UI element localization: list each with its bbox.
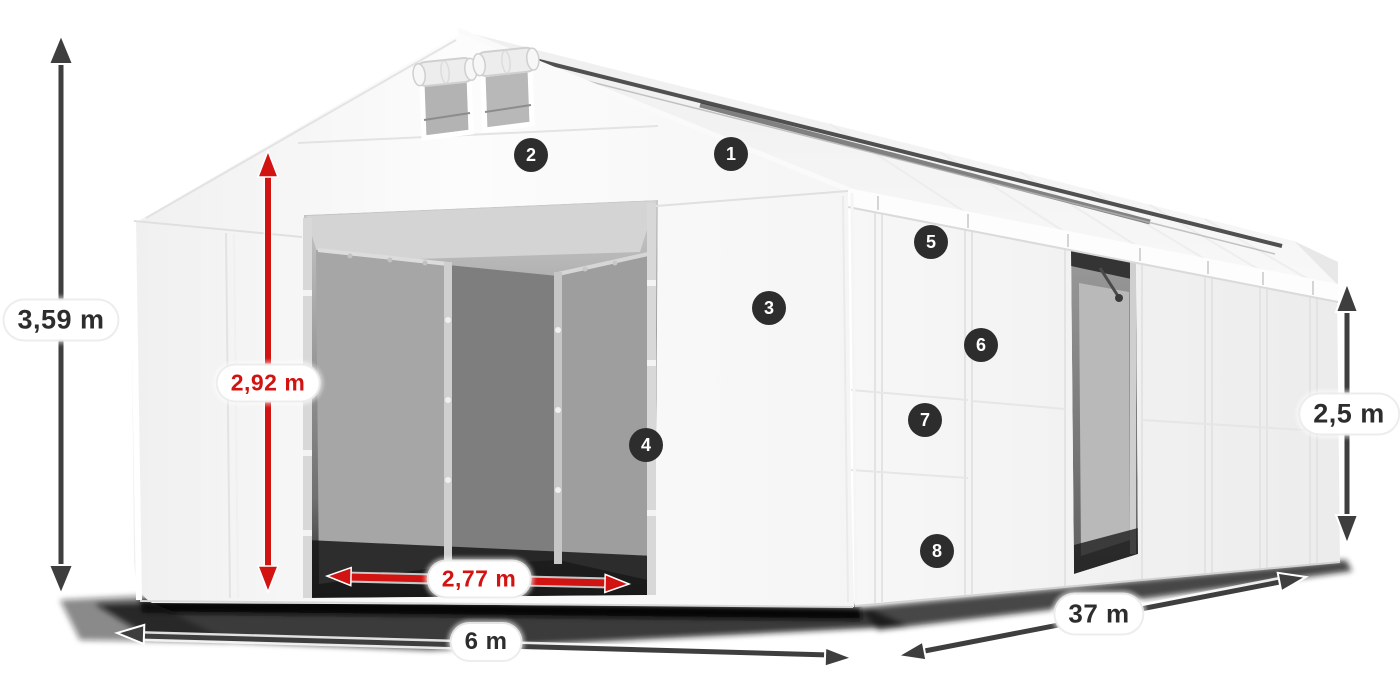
marker-badge-2[interactable]: 2 <box>514 138 548 172</box>
tent-interior <box>304 200 658 598</box>
dimension-label-door-height: 2,92 m <box>218 366 319 401</box>
marker-badge-4[interactable]: 4 <box>629 428 663 462</box>
dimension-label-side-height: 2,5 m <box>1300 395 1398 434</box>
dimension-label-length: 37 m <box>1055 595 1142 634</box>
marker-badge-8[interactable]: 8 <box>920 534 954 568</box>
marker-badge-6[interactable]: 6 <box>964 328 998 362</box>
marker-badge-5[interactable]: 5 <box>914 225 948 259</box>
dimension-label-door-width: 2,77 m <box>429 562 530 597</box>
marker-badge-7[interactable]: 7 <box>908 403 942 437</box>
dimension-label-total-height: 3,59 m <box>4 301 117 340</box>
tent-diagram-canvas: 1 2 3 4 5 6 7 8 3,59 m 2,92 m 2,77 m 6 m… <box>0 0 1400 700</box>
side-door-opening <box>1071 249 1138 574</box>
marker-badge-1[interactable]: 1 <box>714 137 748 171</box>
dimension-label-width: 6 m <box>452 624 521 660</box>
tent-illustration <box>0 0 1400 700</box>
marker-badge-3[interactable]: 3 <box>752 291 786 325</box>
